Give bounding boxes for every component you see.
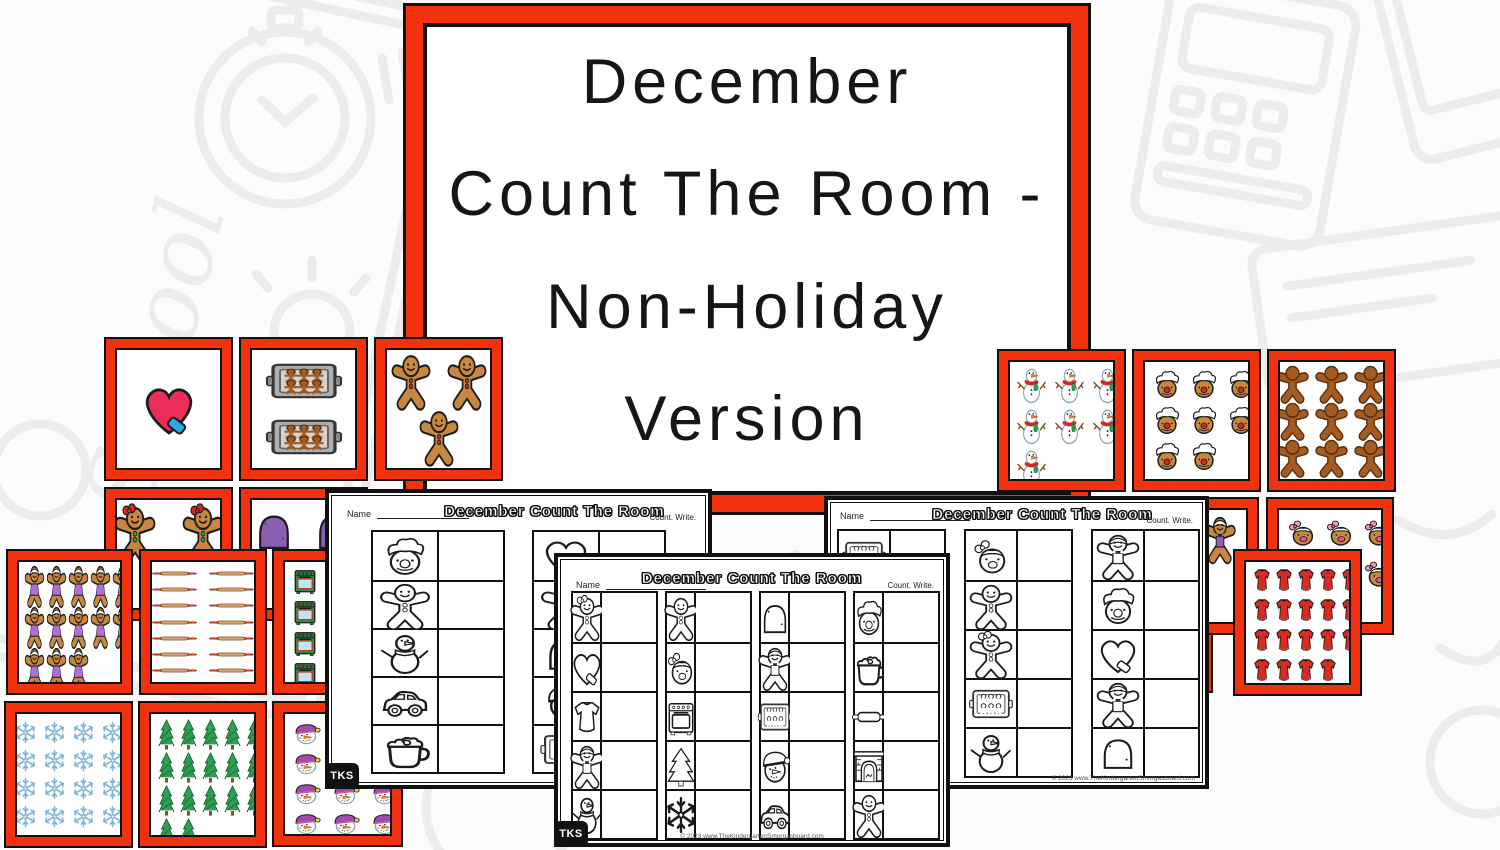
answer-cell xyxy=(1145,582,1198,629)
image-cell xyxy=(855,791,884,838)
card-face xyxy=(1143,360,1250,481)
card-row xyxy=(17,748,120,773)
count-card-baking-tray xyxy=(239,337,368,481)
mitten-gumdrop-icon xyxy=(757,597,793,639)
snowflake-icon xyxy=(100,804,123,829)
gingerbread-chef-face-icon xyxy=(378,534,432,579)
snowman-scarf-icon xyxy=(1091,406,1115,447)
worksheet-row xyxy=(1093,727,1198,776)
card-face xyxy=(115,348,222,470)
image-cell xyxy=(761,644,790,691)
image-cell xyxy=(573,593,602,642)
gingerbread-chef-face-icon xyxy=(1187,368,1221,401)
answer-cell xyxy=(602,791,656,838)
sweater-red-icon xyxy=(1273,655,1295,685)
card-row xyxy=(152,582,254,597)
worksheet-row xyxy=(761,642,844,691)
snowflake-icon xyxy=(71,720,96,745)
worksheet-row xyxy=(761,789,844,838)
gingerbread-bow-face-icon xyxy=(968,534,1014,578)
card-row xyxy=(17,776,120,801)
sweater-red-icon xyxy=(1251,565,1273,595)
image-cell xyxy=(373,582,439,628)
worksheet-instructions: Count. Write. xyxy=(649,513,696,522)
card-row xyxy=(17,720,120,745)
card-row xyxy=(1145,404,1248,437)
title-line-1: December xyxy=(582,51,913,114)
snowflake-icon xyxy=(71,804,96,829)
count-card-gingerbread-man xyxy=(374,337,503,481)
snowman-scarf-icon xyxy=(1091,365,1115,406)
snowflake-icon xyxy=(71,776,96,801)
answer-cell xyxy=(790,693,844,740)
tree-icon xyxy=(200,783,221,816)
title-line-4: Version xyxy=(624,388,869,451)
tks-logo: TKS xyxy=(554,821,588,847)
rolling-pin-icon xyxy=(208,566,255,581)
image-cell xyxy=(761,593,790,642)
worksheet-column-group xyxy=(759,591,846,840)
worksheet-row xyxy=(761,691,844,740)
gingerbread-chef-face-icon xyxy=(1224,404,1250,437)
image-cell xyxy=(573,644,602,691)
image-cell xyxy=(667,742,696,789)
worksheet-row xyxy=(966,727,1071,776)
rolling-pin-icon xyxy=(851,696,887,738)
sweater-red-icon xyxy=(1273,565,1295,595)
sweater-red-icon xyxy=(1317,655,1339,685)
rolling-pin-icon xyxy=(151,647,198,662)
count-card-mitten-heart xyxy=(104,337,233,481)
gingerbread-girl-icon xyxy=(968,633,1014,677)
worksheet-row xyxy=(573,740,656,789)
snowflake-icon xyxy=(100,748,123,773)
image-cell xyxy=(966,531,1018,580)
snowflake-icon xyxy=(42,748,67,773)
car-icon xyxy=(378,679,432,724)
sweater-red-icon xyxy=(1251,655,1273,685)
rolling-pin-icon xyxy=(208,663,255,678)
snowman-hat-face-icon xyxy=(368,810,392,836)
cocoa-icon xyxy=(378,727,432,772)
image-cell xyxy=(1093,729,1145,776)
worksheet-row xyxy=(966,580,1071,629)
gingerbread-man-icon xyxy=(378,583,432,628)
name-label: Name xyxy=(576,580,600,590)
stove-icon xyxy=(663,696,699,738)
card-row xyxy=(151,717,254,750)
answer-cell xyxy=(602,593,656,642)
answer-cell xyxy=(602,693,656,740)
answer-cell xyxy=(696,693,750,740)
gingerbread-boy-icon xyxy=(757,647,793,689)
image-cell xyxy=(667,644,696,691)
worksheet-row xyxy=(855,789,938,838)
gingerbread-cookie-icon xyxy=(1314,365,1349,402)
worksheet-title: December Count The Room xyxy=(932,506,1153,523)
answer-cell xyxy=(696,791,750,838)
gingerbread-cookie-icon xyxy=(1278,402,1310,439)
card-face xyxy=(15,712,122,837)
worksheet-column-group xyxy=(1091,529,1200,778)
sweater-red-icon xyxy=(1317,625,1339,655)
image-cell xyxy=(373,726,439,772)
card-face xyxy=(385,348,492,470)
card-row xyxy=(252,354,355,408)
worksheet-row xyxy=(855,593,938,642)
image-cell xyxy=(667,693,696,740)
card-row xyxy=(152,566,254,581)
snowflake-icon xyxy=(15,776,38,801)
tree-icon xyxy=(156,717,177,750)
worksheet-row xyxy=(373,676,503,724)
worksheet-column-group xyxy=(853,591,940,840)
tree-icon xyxy=(200,750,221,783)
card-row xyxy=(1280,365,1383,402)
answer-cell xyxy=(439,532,503,580)
gingerbread-girl-icon xyxy=(569,597,605,639)
rolling-pin-icon xyxy=(208,582,255,597)
card-row xyxy=(387,410,490,464)
worksheet-instructions: Count. Write. xyxy=(887,581,934,590)
card-row xyxy=(285,810,390,836)
worksheet-row xyxy=(667,740,750,789)
tree-icon xyxy=(178,750,199,783)
worksheet-row xyxy=(966,629,1071,678)
image-cell xyxy=(373,532,439,580)
mitten-heart-icon xyxy=(138,378,200,440)
card-row xyxy=(1010,447,1113,481)
count-card-tree xyxy=(138,701,267,848)
worksheet-title: December Count The Room xyxy=(444,503,665,520)
gingerbread-girl-purple-icon xyxy=(68,647,89,684)
image-cell xyxy=(667,791,696,838)
image-cell xyxy=(1093,680,1145,727)
gingerbread-man-icon xyxy=(418,410,460,464)
gingerbread-man-icon xyxy=(446,354,488,408)
count-card-gingerbread-cookie xyxy=(1267,349,1396,492)
gingerbread-bow-face-icon xyxy=(1322,516,1358,549)
answer-cell xyxy=(696,593,750,642)
gingerbread-boy-icon xyxy=(1095,534,1141,578)
snowman-icon xyxy=(968,731,1014,775)
rolling-pin-icon xyxy=(151,598,198,613)
image-cell xyxy=(966,582,1018,629)
answer-cell xyxy=(884,644,938,691)
stove-icon xyxy=(290,596,320,627)
worksheet-column-group xyxy=(371,530,505,774)
tree-icon xyxy=(200,717,221,750)
gingerbread-man-icon xyxy=(968,584,1014,628)
sweater-red-icon xyxy=(1339,565,1351,595)
card-row xyxy=(1280,402,1383,439)
stove-icon xyxy=(290,565,320,596)
gingerbread-chef-face-icon xyxy=(1150,440,1184,473)
sweater-red-icon xyxy=(1251,625,1273,655)
sweater-red-icon xyxy=(1339,625,1351,655)
image-cell xyxy=(761,693,790,740)
answer-cell xyxy=(884,593,938,642)
card-face xyxy=(150,560,256,684)
gingerbread-boy-icon xyxy=(1095,682,1141,726)
gingerbread-girl-purple-icon xyxy=(112,606,122,647)
worksheet-title: December Count The Room xyxy=(642,570,863,587)
count-card-rolling-pin xyxy=(139,549,267,695)
worksheet-row xyxy=(373,580,503,628)
card-face xyxy=(17,560,122,684)
card-row xyxy=(1280,439,1383,476)
gingerbread-chef-face-icon xyxy=(1150,404,1184,437)
snowman-scarf-icon xyxy=(1015,406,1048,447)
image-cell xyxy=(966,680,1018,727)
stove-icon xyxy=(290,627,320,658)
tree-icon xyxy=(244,783,256,816)
gingerbread-girl-purple-icon xyxy=(68,606,89,647)
name-label: Name xyxy=(347,509,371,519)
card-row xyxy=(19,565,120,606)
tree-icon xyxy=(178,783,199,816)
gingerbread-girl-purple-icon xyxy=(112,565,122,606)
card-row xyxy=(1246,565,1349,595)
tree-icon xyxy=(156,816,177,837)
gingerbread-man-icon xyxy=(663,597,699,639)
snowflake-icon xyxy=(15,720,38,745)
snowflake-icon xyxy=(42,776,67,801)
gingerbread-bow-face-icon xyxy=(1284,516,1320,549)
tree-icon xyxy=(222,750,243,783)
mitten-gumdrop-icon xyxy=(1095,731,1141,775)
worksheet-column-group xyxy=(964,529,1073,778)
worksheet-row xyxy=(855,691,938,740)
car-icon xyxy=(757,794,793,836)
card-row xyxy=(387,354,490,408)
tree-icon xyxy=(222,717,243,750)
image-cell xyxy=(761,742,790,789)
card-row xyxy=(1145,440,1248,473)
rolling-pin-icon xyxy=(151,615,198,630)
answer-cell xyxy=(1145,531,1198,580)
answer-cell xyxy=(1018,729,1071,776)
tree-icon xyxy=(156,750,177,783)
sweater-red-icon xyxy=(1339,595,1351,625)
worksheet-row xyxy=(373,532,503,580)
name-label: Name xyxy=(840,511,864,521)
snowflake-icon xyxy=(100,776,123,801)
tree-icon xyxy=(178,717,199,750)
answer-cell xyxy=(790,644,844,691)
gingerbread-chef-face-icon xyxy=(1187,440,1221,473)
image-cell xyxy=(573,693,602,740)
tree-icon xyxy=(244,717,256,750)
rolling-pin-icon xyxy=(151,663,198,678)
card-row xyxy=(152,647,254,662)
snowman-hat-face-icon xyxy=(290,750,323,777)
card-face xyxy=(149,712,256,837)
gingerbread-cookie-icon xyxy=(1314,439,1349,476)
worksheet-row xyxy=(373,628,503,676)
answer-cell xyxy=(602,644,656,691)
card-row xyxy=(17,804,120,829)
card-row xyxy=(151,750,254,783)
gingerbread-cookie-icon xyxy=(1353,439,1385,476)
count-card-sweater-red xyxy=(1233,549,1362,696)
answer-cell xyxy=(1018,582,1071,629)
snowman-scarf-icon xyxy=(1053,406,1086,447)
gingerbread-cookie-icon xyxy=(1353,365,1385,402)
worksheet-row xyxy=(667,691,750,740)
image-cell xyxy=(667,593,696,642)
snowflake-icon xyxy=(15,804,38,829)
count-card-gingerbread-chef-face xyxy=(1132,349,1261,492)
answer-cell xyxy=(884,742,938,789)
snowman-hat-face-icon xyxy=(329,810,362,836)
cocoa-icon xyxy=(851,647,887,689)
tree-icon xyxy=(244,750,256,783)
answer-cell xyxy=(602,742,656,789)
gingerbread-bow-face-icon xyxy=(663,647,699,689)
gingerbread-bow-face-icon xyxy=(1360,557,1383,590)
worksheet-column-group xyxy=(665,591,752,840)
answer-cell xyxy=(1018,680,1071,727)
image-cell xyxy=(1093,531,1145,580)
gingerbread-chef-face-icon xyxy=(1150,368,1184,401)
image-cell xyxy=(855,693,884,740)
answer-cell xyxy=(1018,631,1071,678)
answer-cell xyxy=(439,726,503,772)
sweater-red-icon xyxy=(1295,565,1317,595)
answer-cell xyxy=(1145,680,1198,727)
tks-logo: TKS xyxy=(325,763,359,789)
sweater-red-icon xyxy=(1295,655,1317,685)
gingerbread-girl-purple-icon xyxy=(24,647,45,684)
baking-tray-icon xyxy=(264,410,344,464)
fireplace-icon xyxy=(851,745,887,787)
snowman-scarf-icon xyxy=(1015,365,1048,406)
worksheet-row xyxy=(761,740,844,789)
sweater-red-icon xyxy=(1317,565,1339,595)
gingerbread-cookie-icon xyxy=(1278,439,1310,476)
gingerbread-chef-face-icon xyxy=(1095,584,1141,628)
image-cell xyxy=(573,742,602,789)
gingerbread-boy-icon xyxy=(569,745,605,787)
gingerbread-girl-purple-icon xyxy=(90,565,111,606)
copyright-footer: © 2023 www.TheKindergartenSmorgasboard.c… xyxy=(1051,775,1195,782)
worksheet-row xyxy=(855,642,938,691)
worksheet-row xyxy=(1093,629,1198,678)
count-card-snowman-scarf xyxy=(997,349,1126,492)
card-row xyxy=(151,816,254,837)
gingerbread-chef-face-icon xyxy=(1224,368,1250,401)
rolling-pin-icon xyxy=(151,566,198,581)
rolling-pin-icon xyxy=(151,582,198,597)
card-face xyxy=(1008,360,1115,481)
tree-icon xyxy=(178,816,199,837)
worksheet-row xyxy=(966,678,1071,727)
card-row xyxy=(252,410,355,464)
answer-cell xyxy=(790,742,844,789)
dress-icon xyxy=(569,696,605,738)
card-row xyxy=(1010,406,1113,447)
card-row xyxy=(1246,625,1349,655)
gingerbread-girl-purple-icon xyxy=(46,606,67,647)
image-cell xyxy=(855,742,884,789)
rolling-pin-icon xyxy=(151,631,198,646)
answer-cell xyxy=(1145,729,1198,776)
worksheet-row xyxy=(966,531,1071,580)
card-row xyxy=(1246,655,1349,685)
baking-tray-icon xyxy=(264,354,344,408)
snowman-hat-face-icon xyxy=(290,720,323,747)
sweater-red-icon xyxy=(1273,595,1295,625)
answer-cell xyxy=(1018,531,1071,580)
answer-cell xyxy=(696,742,750,789)
baking-tray-icon xyxy=(757,696,793,738)
mitten-heart-icon xyxy=(569,647,605,689)
tree-icon xyxy=(222,783,243,816)
baking-tray-icon xyxy=(968,682,1014,726)
worksheet-row xyxy=(573,642,656,691)
worksheet-row xyxy=(855,740,938,789)
image-cell xyxy=(1093,582,1145,629)
rolling-pin-icon xyxy=(208,615,255,630)
rolling-pin-icon xyxy=(208,647,255,662)
rolling-pin-icon xyxy=(208,598,255,613)
answer-cell xyxy=(439,582,503,628)
card-face xyxy=(1244,560,1351,685)
gingerbread-bow-face-icon xyxy=(1360,516,1383,549)
copyright-footer: © 2023 www.TheKindergartenSmorgasboard.c… xyxy=(680,833,824,840)
card-row xyxy=(152,598,254,613)
gingerbread-girl-purple-icon xyxy=(24,565,45,606)
card-row xyxy=(19,647,120,684)
card-row xyxy=(19,606,120,647)
image-cell xyxy=(373,678,439,724)
worksheet-row xyxy=(667,789,750,838)
gingerbread-chef-face-icon xyxy=(1187,404,1221,437)
gingerbread-girl-purple-icon xyxy=(46,647,67,684)
worksheet-row xyxy=(667,642,750,691)
mitten-heart-icon xyxy=(1095,633,1141,677)
snowflake-icon xyxy=(15,748,38,773)
gingerbread-girl-purple-icon xyxy=(24,606,45,647)
answer-cell xyxy=(884,791,938,838)
worksheet-row xyxy=(761,593,844,642)
answer-cell xyxy=(790,791,844,838)
snowflake-icon xyxy=(42,720,67,745)
worksheet-row xyxy=(667,593,750,642)
worksheet-column-group xyxy=(571,591,658,840)
gingerbread-man-icon xyxy=(851,794,887,836)
gingerbread-girl-purple-icon xyxy=(90,606,111,647)
rolling-pin-icon xyxy=(208,631,255,646)
card-row xyxy=(1246,595,1349,625)
snowflake-icon xyxy=(100,720,123,745)
gingerbread-girl-purple-icon xyxy=(68,565,89,606)
snowman-scarf-icon xyxy=(1053,365,1086,406)
count-card-snowflake xyxy=(4,701,133,848)
count-card-gingerbread-girl-purple xyxy=(6,549,133,695)
snowman-hat-face-icon xyxy=(757,745,793,787)
tree-icon xyxy=(663,745,699,787)
snowflake-icon xyxy=(71,748,96,773)
worksheet-instructions: Count. Write. xyxy=(1146,516,1193,525)
image-cell xyxy=(1093,631,1145,678)
image-cell xyxy=(761,791,790,838)
snowflake-icon xyxy=(663,794,699,836)
card-row xyxy=(152,615,254,630)
card-row xyxy=(1010,365,1113,406)
worksheet-row xyxy=(573,593,656,642)
